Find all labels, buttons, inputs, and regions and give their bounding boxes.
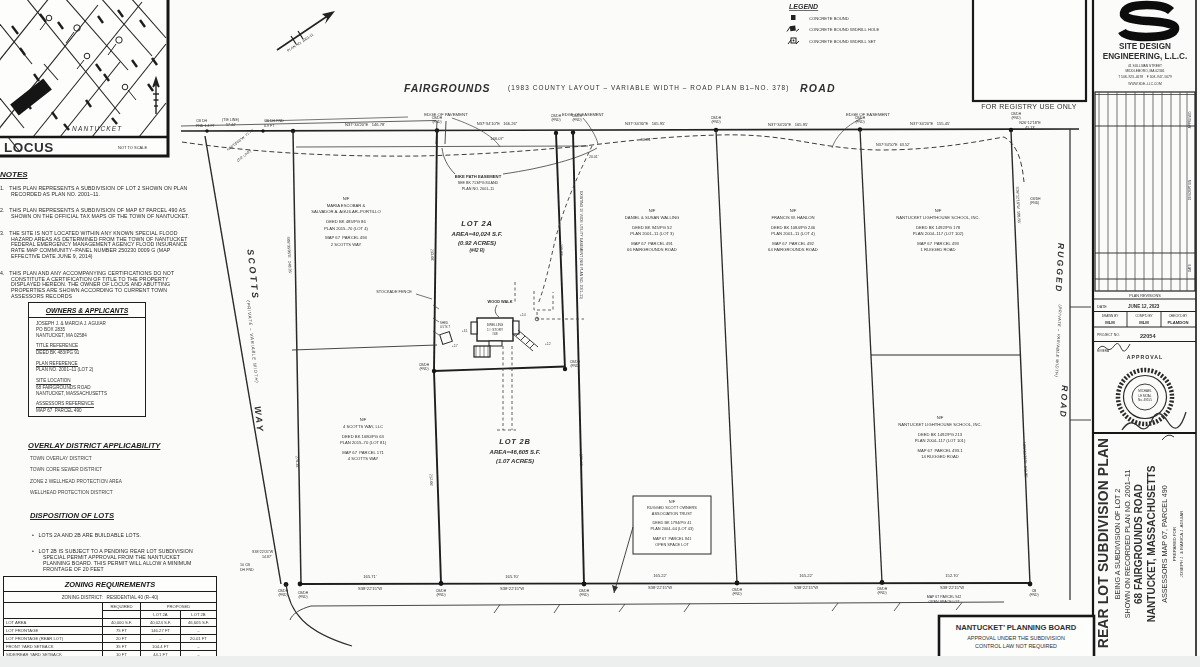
svg-text:DEED BK 1492/PG 213: DEED BK 1492/PG 213 — [918, 432, 963, 437]
svg-text:EXISTING 10′ WIDE UTILITY: EXISTING 10′ WIDE UTILITY EASEMENT (SEE … — [579, 191, 583, 299]
svg-text:RUGGED: RUGGED — [1054, 243, 1067, 294]
svg-text:20.01′: 20.01′ — [589, 155, 599, 159]
svg-text:DEED BK 1794/PG 41: DEED BK 1794/PG 41 — [653, 520, 692, 525]
svg-text:STOCKADE FENCE: STOCKADE FENCE — [376, 289, 412, 294]
svg-text:WOOD WALK: WOOD WALK — [487, 299, 512, 304]
svg-text:CONCRETE BOUND W/DRILL HOLE: CONCRETE BOUND W/DRILL HOLE — [809, 27, 880, 32]
svg-text:1 RUGGED ROAD: 1 RUGGED ROAD — [920, 247, 955, 252]
svg-text:(TIE LINE): (TIE LINE) — [222, 118, 239, 122]
svg-text:4 SCOTTS WAY: 4 SCOTTS WAY — [348, 456, 379, 461]
svg-text:14.87′: 14.87′ — [262, 555, 272, 559]
svg-text:PLAN NO. 2001–11: PLAN NO. 2001–11 — [462, 187, 494, 191]
svg-text:CB DH: CB DH — [196, 119, 208, 123]
svg-text:(FND): (FND) — [711, 120, 720, 124]
svg-text:MAP 67 PARCEL 942: MAP 67 PARCEL 942 — [927, 595, 962, 599]
svg-text:S38°22′15″W: S38°22′15″W — [940, 585, 964, 590]
svg-text:PLAN 2015–70 (LOT 4): PLAN 2015–70 (LOT 4) — [324, 226, 369, 231]
svg-text:165.71′: 165.71′ — [363, 574, 377, 579]
svg-text:165.70′: 165.70′ — [505, 574, 519, 579]
svg-text:152.70′: 152.70′ — [945, 573, 959, 578]
svg-text:(FND): (FND) — [572, 118, 581, 122]
svg-text:CONTROL LAW NOT REQUIRED: CONTROL LAW NOT REQUIRED — [975, 643, 1057, 649]
svg-text:(FND): (FND) — [432, 120, 441, 124]
svg-text:(FND): (FND) — [298, 595, 307, 599]
svg-text:+3.1: +3.1 — [462, 329, 468, 333]
svg-text:PREPARED FOR: PREPARED FOR — [1172, 527, 1177, 561]
svg-text:233.08′: 233.08′ — [430, 249, 434, 262]
svg-text:(FND): (FND) — [278, 593, 287, 597]
svg-text:CHECK’D BY: CHECK’D BY — [1169, 314, 1188, 318]
svg-text:N/F: N/F — [937, 415, 944, 420]
svg-text:(#42 R): (#42 R) — [469, 248, 485, 253]
svg-text:N/F: N/F — [935, 208, 942, 213]
svg-text:N37°34′20″E 165.95′: N37°34′20″E 165.95′ — [768, 122, 808, 127]
svg-text:41.13′: 41.13′ — [1025, 126, 1036, 130]
svg-text:DANIEL & SUSAN WALLING: DANIEL & SUSAN WALLING — [625, 215, 679, 220]
svg-text:No. 49155: No. 49155 — [1138, 398, 1152, 402]
svg-text:APPROVED: APPROVED — [1188, 111, 1192, 129]
svg-text:(FND): (FND) — [570, 364, 579, 368]
svg-text:APPROVAL: APPROVAL — [1127, 354, 1163, 360]
svg-text:BIKE PATH EASEMENT: BIKE PATH EASEMENT — [455, 174, 502, 179]
svg-text:ENGINEERING, L.L.C.: ENGINEERING, L.L.C. — [1103, 52, 1188, 61]
svg-text:(TIE LINE): (TIE LINE) — [236, 149, 252, 163]
svg-text:N37°34′10″E 166.26″: N37°34′10″E 166.26″ — [477, 121, 518, 126]
svg-text:(FND): (FND) — [551, 118, 560, 122]
svg-text:NANTUCKET LIGHTHOUSE SCHOOL,: NANTUCKET LIGHTHOUSE SCHOOL, INC. — [898, 422, 981, 427]
svg-text:68 FAIRGROUNDS ROAD: 68 FAIRGROUNDS ROAD — [1133, 484, 1144, 604]
svg-text:165.22′: 165.22′ — [799, 573, 813, 578]
svg-text:66 FAIRGROUNDS ROAD: 66 FAIRGROUNDS ROAD — [627, 247, 677, 252]
svg-text:N37°34′20″E 155.45′: N37°34′20″E 155.45′ — [910, 121, 950, 126]
svg-text:LOCUS: LOCUS — [4, 140, 54, 155]
svg-text:1½ STORY: 1½ STORY — [487, 328, 504, 332]
svg-text:CONCRETE BOUND W/DRILL SET: CONCRETE BOUND W/DRILL SET — [809, 39, 877, 44]
svg-text:S38°22′05″W: S38°22′05″W — [252, 550, 274, 554]
svg-text:PLAN REVISIONS: PLAN REVISIONS — [1129, 294, 1161, 298]
svg-text:(FND): (FND) — [1029, 593, 1038, 597]
svg-text:MARIA ESCOBAR &: MARIA ESCOBAR & — [327, 203, 366, 208]
svg-text:LOT 2B: LOT 2B — [499, 437, 530, 446]
svg-text:DRAWN BY: DRAWN BY — [1102, 314, 1119, 318]
svg-text:(PRIVATE – VARIABLE WIDTH): (PRIVATE – VARIABLE WIDTH) — [246, 300, 260, 384]
svg-text:212.06′: 212.06′ — [429, 474, 433, 487]
svg-text:PLAN 2004–117 (LOT 102): PLAN 2004–117 (LOT 102) — [913, 231, 964, 236]
svg-text:(FND): (FND) — [1030, 201, 1039, 205]
svg-text:S26°12′18″W 108.83′: S26°12′18″W 108.83′ — [1015, 186, 1021, 223]
svg-text:235.93′: 235.93′ — [559, 244, 563, 257]
svg-text:SALVADOR A. AGUILAR–PORTILLO: SALVADOR A. AGUILAR–PORTILLO — [311, 209, 381, 214]
svg-text:DATE: DATE — [1097, 305, 1107, 309]
svg-text:T 508–923–4678 F 508–947–: T 508–923–4678 F 508–947–5679 — [1118, 75, 1172, 79]
svg-text:EDGE OF EASEMENT: EDGE OF EASEMENT — [562, 112, 605, 117]
svg-text:MAP 67 PARCEL 941: MAP 67 PARCEL 941 — [653, 536, 692, 541]
svg-text:N37°34′50″E 63.52′: N37°34′50″E 63.52′ — [876, 143, 910, 147]
svg-text:MIDDLEBORO, MA 02346: MIDDLEBORO, MA 02346 — [1126, 69, 1165, 73]
svg-text:PLAN 2015–70 (LOT 81): PLAN 2015–70 (LOT 81) — [340, 440, 387, 445]
svg-text:4 SCOTTS WAY, LLC: 4 SCOTTS WAY, LLC — [343, 424, 383, 429]
svg-text:(FND): (FND) — [732, 592, 741, 596]
svg-text:MICHAEL: MICHAEL — [1138, 389, 1152, 393]
svg-text:N/F: N/F — [649, 208, 656, 213]
svg-text:FOR REGISTRY USE ONLY: FOR REGISTRY USE ONLY — [981, 103, 1076, 110]
svg-text:(FND): (FND) — [877, 591, 886, 595]
svg-text:JUNE 12, 2023: JUNE 12, 2023 — [1128, 304, 1160, 309]
svg-text:278.38′: 278.38′ — [295, 456, 300, 469]
svg-text:N37°34′30″E 165.95′: N37°34′30″E 165.95′ — [625, 121, 665, 126]
svg-text:JOSEPH J. & MARICA J. AGUIAR: JOSEPH J. & MARICA J. AGUIAR — [1179, 511, 1184, 578]
svg-text:COMP’D BY: COMP’D BY — [1135, 314, 1152, 318]
svg-text:DH FND: DH FND — [240, 568, 254, 572]
svg-text:S05°35′05″E 240.26′: S05°35′05″E 240.26′ — [286, 236, 292, 273]
svg-text:N26°12′18″E: N26°12′18″E — [1019, 121, 1041, 125]
svg-text:OPEN SPACE LOT: OPEN SPACE LOT — [655, 542, 689, 547]
svg-text:DEED BK 1084/PG 246: DEED BK 1084/PG 246 — [771, 225, 816, 230]
svg-text:NANTUCKET’ PLANNING BOARD: NANTUCKET’ PLANNING BOARD — [956, 623, 1077, 632]
svg-text:(1983 COUNTY LAYOUT – VARIAB: (1983 COUNTY LAYOUT – VARIABLE WIDTH – R… — [508, 84, 789, 92]
svg-text:ASSOCIATION TRUST: ASSOCIATION TRUST — [652, 511, 693, 516]
svg-text:(FND): (FND) — [436, 593, 445, 597]
svg-text:NOT TO SCALE: NOT TO SCALE — [118, 145, 147, 150]
svg-text:64 FAIRGROUNDS ROAD: 64 FAIRGROUNDS ROAD — [768, 247, 818, 252]
svg-text:DEED BK 485/PG 86: DEED BK 485/PG 86 — [326, 219, 366, 224]
svg-text:AREA=40,024 S.F.: AREA=40,024 S.F. — [451, 231, 503, 237]
svg-text:30.01′: 30.01′ — [640, 137, 651, 142]
svg-text:REAR LOT SUBDIVISION PLAN: REAR LOT SUBDIVISION PLAN — [1096, 438, 1111, 648]
svg-text:DEED BK 1680/PG 63: DEED BK 1680/PG 63 — [342, 434, 385, 439]
svg-text:0.5′ N.T: 0.5′ N.T — [440, 325, 450, 329]
svg-text:PLAN 2001–11 (LOT 4): PLAN 2001–11 (LOT 4) — [771, 231, 815, 236]
svg-text:SCOTTS: SCOTTS — [245, 249, 260, 301]
svg-text:SHOWN ON RECORDED PLAN NO. 200: SHOWN ON RECORDED PLAN NO. 2001–11 — [1123, 470, 1132, 618]
svg-text:57.44′: 57.44′ — [226, 123, 236, 127]
svg-text:N37°34′20″E 146.78′: N37°34′20″E 146.78′ — [345, 122, 385, 127]
svg-text:DATE: DATE — [1188, 264, 1192, 272]
svg-text:14 RUGGED ROAD: 14 RUGGED ROAD — [921, 454, 958, 459]
svg-text:WWW.SDE–LLC.COM: WWW.SDE–LLC.COM — [1128, 82, 1162, 86]
svg-text:N26°12′18″E 343.05′: N26°12′18″E 343.05′ — [1022, 442, 1028, 478]
svg-text:RUGGED SCOTT OWNERS: RUGGED SCOTT OWNERS — [647, 505, 697, 510]
svg-text:MAP 67 PARCEL 494: MAP 67 PARCEL 494 — [325, 235, 367, 240]
svg-text:SITE DESIGN: SITE DESIGN — [1119, 42, 1171, 51]
svg-text:EDGE OF EASEMENT: EDGE OF EASEMENT — [846, 112, 891, 117]
svg-text:ROAD: ROAD — [800, 82, 836, 94]
svg-text:NANTUCKET, MASSACHUSETTS: NANTUCKET, MASSACHUSETTS — [1146, 465, 1157, 622]
svg-text:(FND): (FND) — [1011, 116, 1020, 120]
svg-text:LEGEND: LEGEND — [789, 3, 818, 10]
svg-text:10 CB: 10 CB — [240, 563, 251, 567]
svg-text:N/F: N/F — [790, 208, 797, 213]
svg-text:N/F: N/F — [669, 499, 676, 504]
svg-text:DESCRIPTION: DESCRIPTION — [1188, 180, 1192, 201]
svg-text:PLAN 2001–11 (LOT 3): PLAN 2001–11 (LOT 3) — [630, 231, 674, 236]
svg-text:165.22′: 165.22′ — [653, 573, 667, 578]
svg-text:#68: #68 — [492, 332, 498, 336]
svg-text:(PRIVATE – VARIABLE WIDTH): (PRIVATE – VARIABLE WIDTH) — [1054, 305, 1063, 378]
svg-text:41 SULLIVAN STREET: 41 SULLIVAN STREET — [1128, 64, 1162, 68]
svg-text:LOT 2A: LOT 2A — [461, 219, 492, 228]
svg-text:AREA=46,605 S.F.: AREA=46,605 S.F. — [489, 449, 541, 455]
svg-text:22054: 22054 — [1140, 333, 1156, 339]
svg-text:S38°22′15″W: S38°22′15″W — [500, 586, 524, 591]
svg-text:ROAD: ROAD — [1058, 385, 1070, 419]
svg-text:0.9 FT: 0.9 FT — [264, 124, 275, 128]
svg-text:MLM: MLM — [1139, 320, 1149, 325]
svg-text:S38°22′15″W: S38°22′15″W — [794, 585, 818, 590]
svg-text:DEED BK 945/PG 52: DEED BK 945/PG 52 — [632, 225, 672, 230]
svg-text:(1.07 ACRES): (1.07 ACRES) — [496, 458, 534, 464]
svg-text:MLM: MLM — [1105, 320, 1115, 325]
svg-text:ASSESSORS MAP 67, PARCEL 490: ASSESSORS MAP 67, PARCEL 490 — [1160, 485, 1169, 603]
svg-text:APPROVAL UNDER THE SUBDIVIS: APPROVAL UNDER THE SUBDIVISION — [967, 635, 1065, 641]
svg-text:+2.2: +2.2 — [545, 342, 551, 346]
svg-text:CONCRETE BOUND: CONCRETE BOUND — [809, 16, 849, 21]
svg-text:RIVIERA: RIVIERA — [1097, 349, 1109, 353]
svg-text:2 SCOTTS WAY: 2 SCOTTS WAY — [331, 242, 362, 247]
svg-text:271.10′: 271.10′ — [579, 454, 583, 467]
svg-text:S38°22′15″W: S38°22′15″W — [648, 585, 672, 590]
svg-text:SEE BK 713/PG 84 AND: SEE BK 713/PG 84 AND — [458, 181, 499, 185]
svg-text:PLAN 2004–64 (LOT 43): PLAN 2004–64 (LOT 43) — [651, 526, 695, 531]
svg-text:DWELLING: DWELLING — [487, 323, 504, 327]
svg-text:LE MOAL: LE MOAL — [1138, 394, 1151, 398]
svg-text:FRANCIS W. HANLON: FRANCIS W. HANLON — [771, 215, 814, 220]
svg-text:BEING A SUBDIVISION OF LOT 2: BEING A SUBDIVISION OF LOT 2 — [1113, 489, 1122, 600]
svg-text:N/F: N/F — [360, 417, 367, 422]
svg-text:NANTUCKET: NANTUCKET — [72, 125, 123, 132]
svg-text:S38°22′15″W: S38°22′15″W — [358, 586, 382, 591]
svg-text:(FND): (FND) — [419, 367, 428, 371]
svg-text:PROJECT NO.: PROJECT NO. — [1097, 333, 1120, 337]
svg-text:NANTUCKET LIGHTHOUSE SCHOOL,: NANTUCKET LIGHTHOUSE SCHOOL, INC. — [896, 215, 979, 220]
svg-text:(FND): (FND) — [579, 593, 588, 597]
svg-text:MAP 67 PARCEL 493.1: MAP 67 PARCEL 493.1 — [917, 448, 963, 453]
svg-text:MAP 67 PARCEL 493: MAP 67 PARCEL 493 — [917, 241, 959, 246]
svg-text:+2.4: +2.4 — [520, 313, 526, 317]
svg-text:(0.92 ACRES): (0.92 ACRES) — [458, 240, 496, 246]
svg-text:CB DH FND: CB DH FND — [264, 119, 284, 123]
svg-text:+2.7: +2.7 — [452, 344, 458, 348]
svg-text:DEED BK 1492/PG 178: DEED BK 1492/PG 178 — [916, 225, 961, 230]
svg-text:PLAMDON: PLAMDON — [1167, 320, 1188, 325]
svg-text:MAP 67 PARCEL 171: MAP 67 PARCEL 171 — [342, 450, 384, 455]
svg-text:MAP 67 PARCEL 491: MAP 67 PARCEL 491 — [631, 241, 673, 246]
svg-text:(FND): (FND) — [855, 120, 864, 124]
svg-text:MAP 67 PARCEL 492: MAP 67 PARCEL 492 — [772, 241, 814, 246]
svg-text:N/F: N/F — [343, 196, 350, 201]
svg-text:146.07′: 146.07′ — [490, 136, 504, 141]
svg-text:PLAN 2004–117 (LOT 101): PLAN 2004–117 (LOT 101) — [915, 438, 966, 443]
svg-text:FAIRGROUNDS: FAIRGROUNDS — [404, 82, 490, 94]
svg-text:FND 1.4 FT: FND 1.4 FT — [196, 124, 216, 128]
